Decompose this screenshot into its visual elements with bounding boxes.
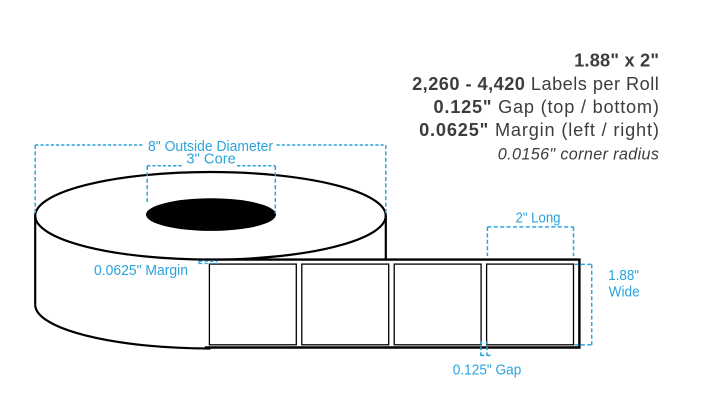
svg-text:0.0625" Margin: 0.0625" Margin xyxy=(94,263,188,279)
svg-text:1.88" x 2": 1.88" x 2" xyxy=(574,50,659,70)
svg-text:2,260 - 4,420 Labels per Roll: 2,260 - 4,420 Labels per Roll xyxy=(412,74,659,94)
svg-text:0.125" Gap (top / bottom): 0.125" Gap (top / bottom) xyxy=(434,97,659,117)
svg-text:1.88": 1.88" xyxy=(608,268,639,284)
svg-text:Wide: Wide xyxy=(609,285,640,301)
svg-text:0.125" Gap: 0.125" Gap xyxy=(453,362,522,378)
svg-text:2" Long: 2" Long xyxy=(516,210,561,226)
svg-text:0.0156" corner radius: 0.0156" corner radius xyxy=(498,145,659,163)
svg-text:3" Core: 3" Core xyxy=(186,152,236,168)
svg-text:0.0625" Margin (left / right): 0.0625" Margin (left / right) xyxy=(419,120,659,140)
